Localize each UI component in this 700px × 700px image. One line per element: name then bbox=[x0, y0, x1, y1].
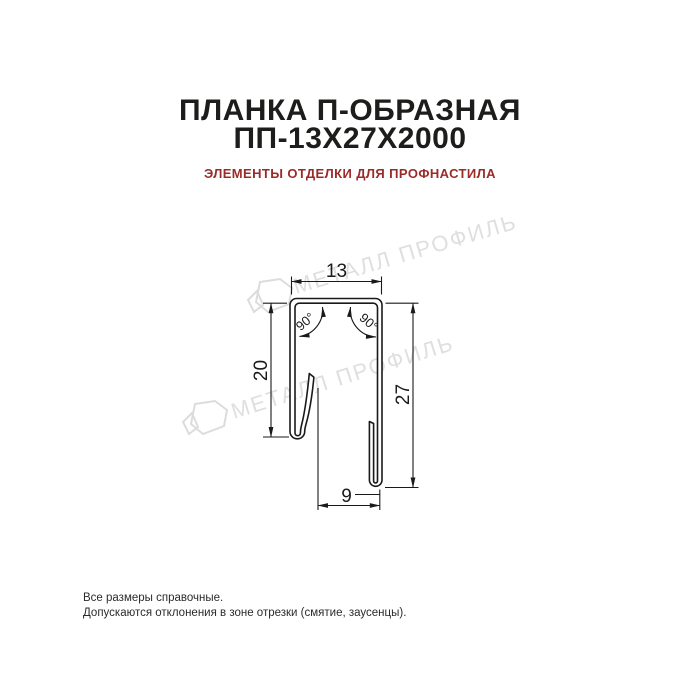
product-card: ПЛАНКА П-ОБРАЗНАЯ ПП-13Х27Х2000 ЭЛЕМЕНТЫ… bbox=[0, 0, 700, 700]
dim-label-20: 20 bbox=[251, 360, 272, 381]
dim-label-13: 13 bbox=[326, 261, 347, 282]
footnote-line1: Все размеры справочные. bbox=[83, 591, 406, 606]
dim-label-27: 27 bbox=[393, 384, 414, 405]
angle-callout-left: 90° bbox=[293, 307, 323, 337]
dimension-right-height: 27 bbox=[385, 303, 419, 487]
footnote: Все размеры справочные. Допускаются откл… bbox=[83, 591, 406, 620]
brand-logo-icon bbox=[183, 401, 227, 434]
brand-logo-icon bbox=[248, 279, 292, 312]
angle-callout-right: 90° bbox=[350, 307, 381, 337]
watermark-layer: МЕТАЛЛ ПРОФИЛЬ МЕТАЛЛ ПРОФИЛЬ bbox=[183, 209, 520, 434]
dim-label-9: 9 bbox=[341, 486, 352, 507]
footnote-line2: Допускаются отклонения в зоне отрезки (с… bbox=[83, 606, 406, 621]
watermark-text-top: МЕТАЛЛ ПРОФИЛЬ bbox=[290, 209, 520, 299]
